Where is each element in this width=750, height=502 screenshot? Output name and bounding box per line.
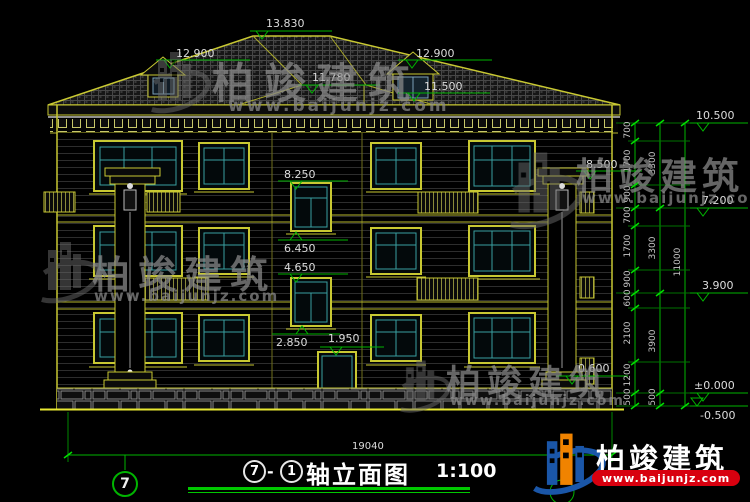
axis-bubble-left: 7 — [112, 471, 138, 497]
title-axis-end: 1 — [280, 460, 303, 483]
elevation-label-dormer-right-base: 11.500 — [424, 80, 463, 93]
chain-mid-1: 3300 — [648, 228, 658, 268]
chain-mid-3: 500 — [648, 377, 658, 417]
watermark-url-right: www.baijunjz.com — [582, 189, 750, 207]
chain-mid-2: 3900 — [648, 321, 658, 361]
watermark-url-top: www.baijunjz.com — [228, 96, 450, 116]
drawing-title: 轴立面图 — [306, 455, 410, 490]
elevation-label-ridge: 13.830 — [266, 17, 305, 30]
chain-inner-6: 600 — [623, 278, 633, 318]
elevation-label-dormer-left: 12.900 — [176, 47, 215, 60]
elevation-label-stair-win2-head: 4.650 — [284, 261, 316, 274]
elevation-label-porch: 2.850 — [276, 336, 308, 349]
elevation-label-floor2: 3.900 — [702, 279, 734, 292]
title-underline-thick — [188, 487, 470, 490]
cad-elevation-canvas: 13.830 12.900 12.900 11.780 11.500 8.500… — [0, 0, 750, 502]
watermark-url-left: www.baijunjz.com — [94, 287, 279, 305]
elevation-label-dormer-right: 12.900 — [416, 47, 455, 60]
watermark-url-bottom: www.baijunjz.com — [450, 393, 625, 409]
elevation-label-ground: -0.500 — [700, 409, 735, 422]
elevation-label-floor1: ±0.000 — [694, 379, 735, 392]
brand-logo-url-banner: www.baijunjz.com — [592, 470, 740, 486]
title-separator: - — [267, 462, 274, 481]
chain-total: 11000 — [673, 242, 683, 282]
elevation-label-door-head: 1.950 — [328, 332, 360, 345]
title-axis-start: 7 — [243, 460, 266, 483]
elevation-label-eave: 10.500 — [696, 109, 735, 122]
elevation-label-stair-win3-head: 8.250 — [284, 168, 316, 181]
chain-inner-7: 2100 — [623, 313, 633, 353]
title-underline-thin — [188, 492, 470, 493]
drawing-scale: 1:100 — [436, 460, 496, 482]
elevation-label-stair-win3-sill: 6.450 — [284, 242, 316, 255]
overall-width-dimension: 19040 — [352, 441, 384, 452]
